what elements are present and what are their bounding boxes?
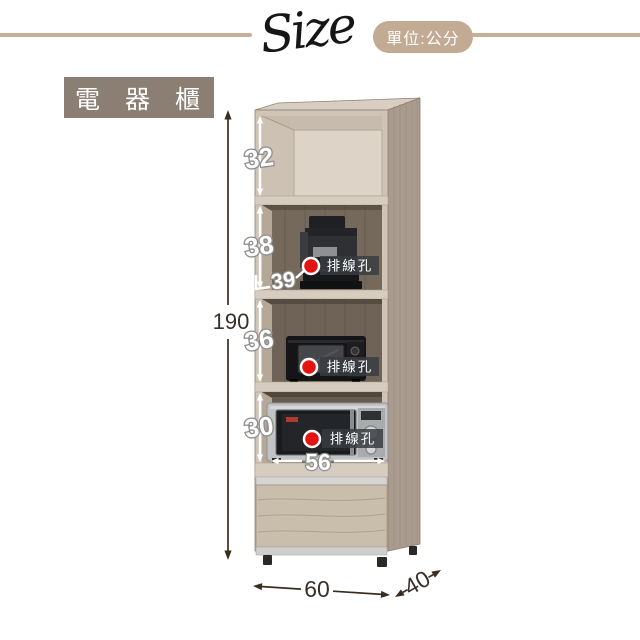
foot-front-left — [263, 555, 272, 565]
cable-hole-3: 排線孔 — [304, 429, 383, 448]
cable-hole-label-2: 排線孔 — [327, 360, 374, 375]
shelf-board-1 — [255, 196, 388, 205]
dim-label-36: 36 — [243, 323, 276, 357]
coffee-machine-group-head — [313, 247, 337, 257]
drawer — [256, 485, 387, 547]
cabinet-dimension-diagram: Size — [0, 0, 640, 640]
cable-hole-dot-2 — [301, 359, 317, 375]
cable-hole-label-1: 排線孔 — [327, 259, 374, 274]
foot-front-right — [377, 557, 387, 567]
drawer-handle-strip — [256, 477, 387, 485]
toaster-dial-1 — [351, 347, 359, 355]
cabinet-side — [388, 98, 420, 551]
size-script-text: Size — [257, 0, 359, 65]
cable-hole-1: 排線孔 — [303, 256, 379, 275]
flip-door-panel — [294, 130, 382, 196]
dimension-depth: 40 — [395, 565, 441, 600]
microwave-display — [361, 411, 381, 420]
foot-back-right — [409, 546, 417, 555]
dim-label-40: 40 — [399, 565, 434, 600]
dim-label-56: 56 — [305, 449, 331, 475]
cable-hole-label-3: 排線孔 — [330, 432, 377, 447]
dim-label-32: 32 — [243, 141, 276, 175]
microwave-brand-mark — [286, 417, 298, 422]
shelf-board-3 — [255, 382, 388, 392]
cable-hole-dot-1 — [303, 258, 319, 274]
dim-label-39: 39 — [269, 266, 297, 294]
cable-hole-dot-3 — [304, 431, 320, 447]
upper-door-compartment — [262, 116, 382, 196]
cabinet-illustration — [255, 98, 420, 567]
dim-label-38: 38 — [243, 229, 276, 263]
cable-hole-2: 排線孔 — [301, 357, 379, 376]
dim-label-30: 30 — [243, 410, 276, 444]
kick-plate — [256, 547, 387, 555]
dim-label-60: 60 — [304, 576, 330, 602]
dimension-width: 60 — [253, 576, 390, 602]
